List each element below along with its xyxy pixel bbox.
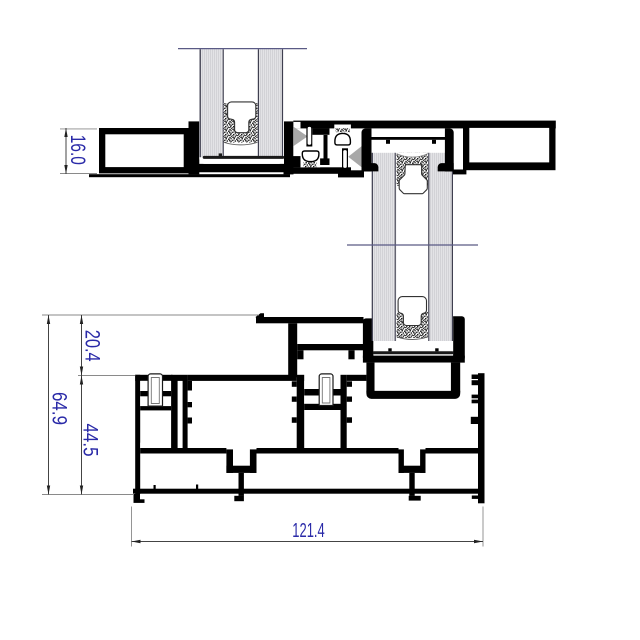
svg-text:64.9: 64.9 [48, 392, 71, 425]
svg-text:44.5: 44.5 [79, 424, 102, 457]
svg-text:121.4: 121.4 [292, 519, 325, 542]
svg-text:16.0: 16.0 [66, 135, 89, 165]
svg-text:20.4: 20.4 [81, 330, 104, 362]
